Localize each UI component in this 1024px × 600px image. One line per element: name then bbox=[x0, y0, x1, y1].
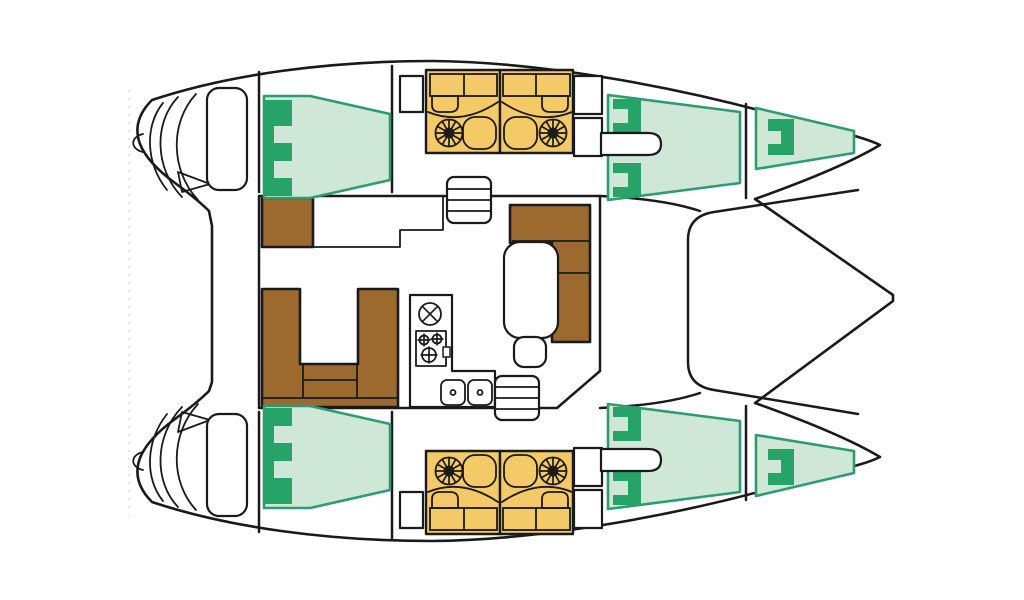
helm-bench bbox=[207, 88, 247, 190]
saloon-table bbox=[504, 242, 558, 338]
stairs-bottom-hull bbox=[495, 376, 539, 420]
stairs-top-hull bbox=[447, 177, 491, 223]
catamaran-floorplan bbox=[0, 0, 1024, 600]
head-inboard bbox=[500, 70, 573, 153]
floorplan-stage bbox=[0, 0, 1024, 600]
berth-entry bbox=[601, 133, 661, 155]
cabinet bbox=[400, 76, 423, 112]
berth-headboard bbox=[265, 100, 292, 196]
forward-cabin-berth bbox=[601, 95, 740, 200]
wardrobe-cabinet bbox=[574, 76, 602, 114]
head-outboard bbox=[426, 70, 500, 153]
fan-vent-icon bbox=[540, 120, 567, 147]
fan-vent-icon bbox=[436, 120, 463, 147]
aft-cabin-berth bbox=[264, 96, 390, 198]
wardrobe-cabinet bbox=[574, 118, 602, 156]
stool bbox=[514, 337, 546, 367]
nav-seat bbox=[262, 198, 313, 247]
stove-burners-icon bbox=[416, 331, 450, 366]
